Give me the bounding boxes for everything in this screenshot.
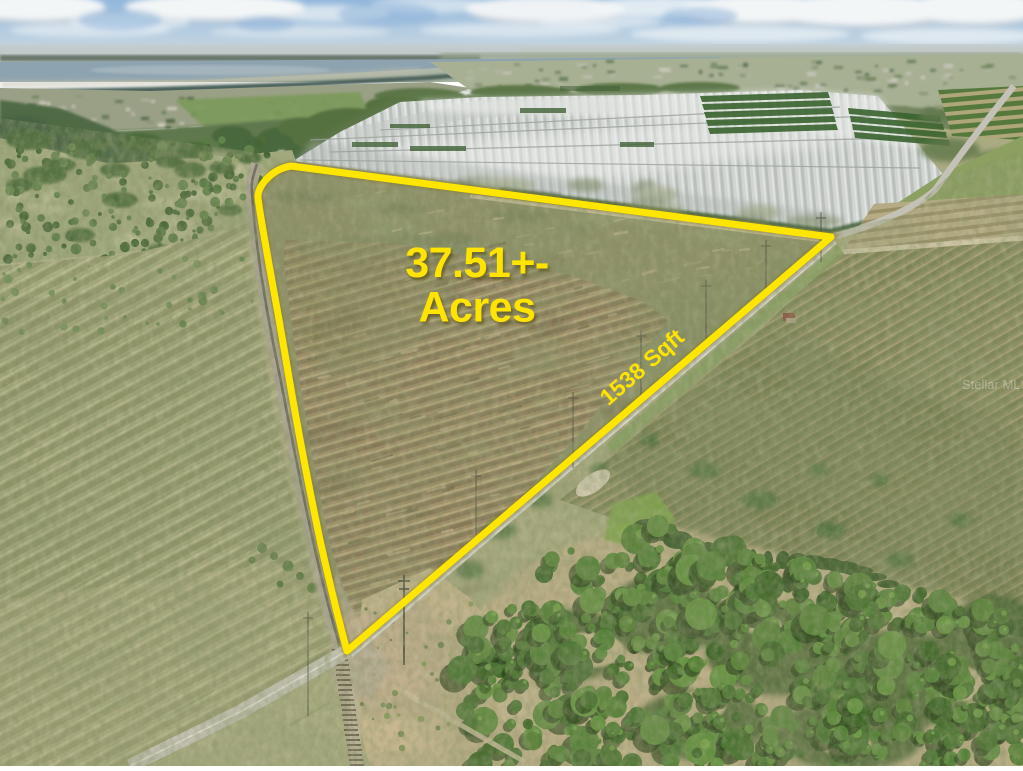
svg-text:Acres: Acres xyxy=(418,284,535,332)
svg-text:Stellar MLS: Stellar MLS xyxy=(962,377,1023,392)
svg-text:37.51+-: 37.51+- xyxy=(405,239,549,287)
